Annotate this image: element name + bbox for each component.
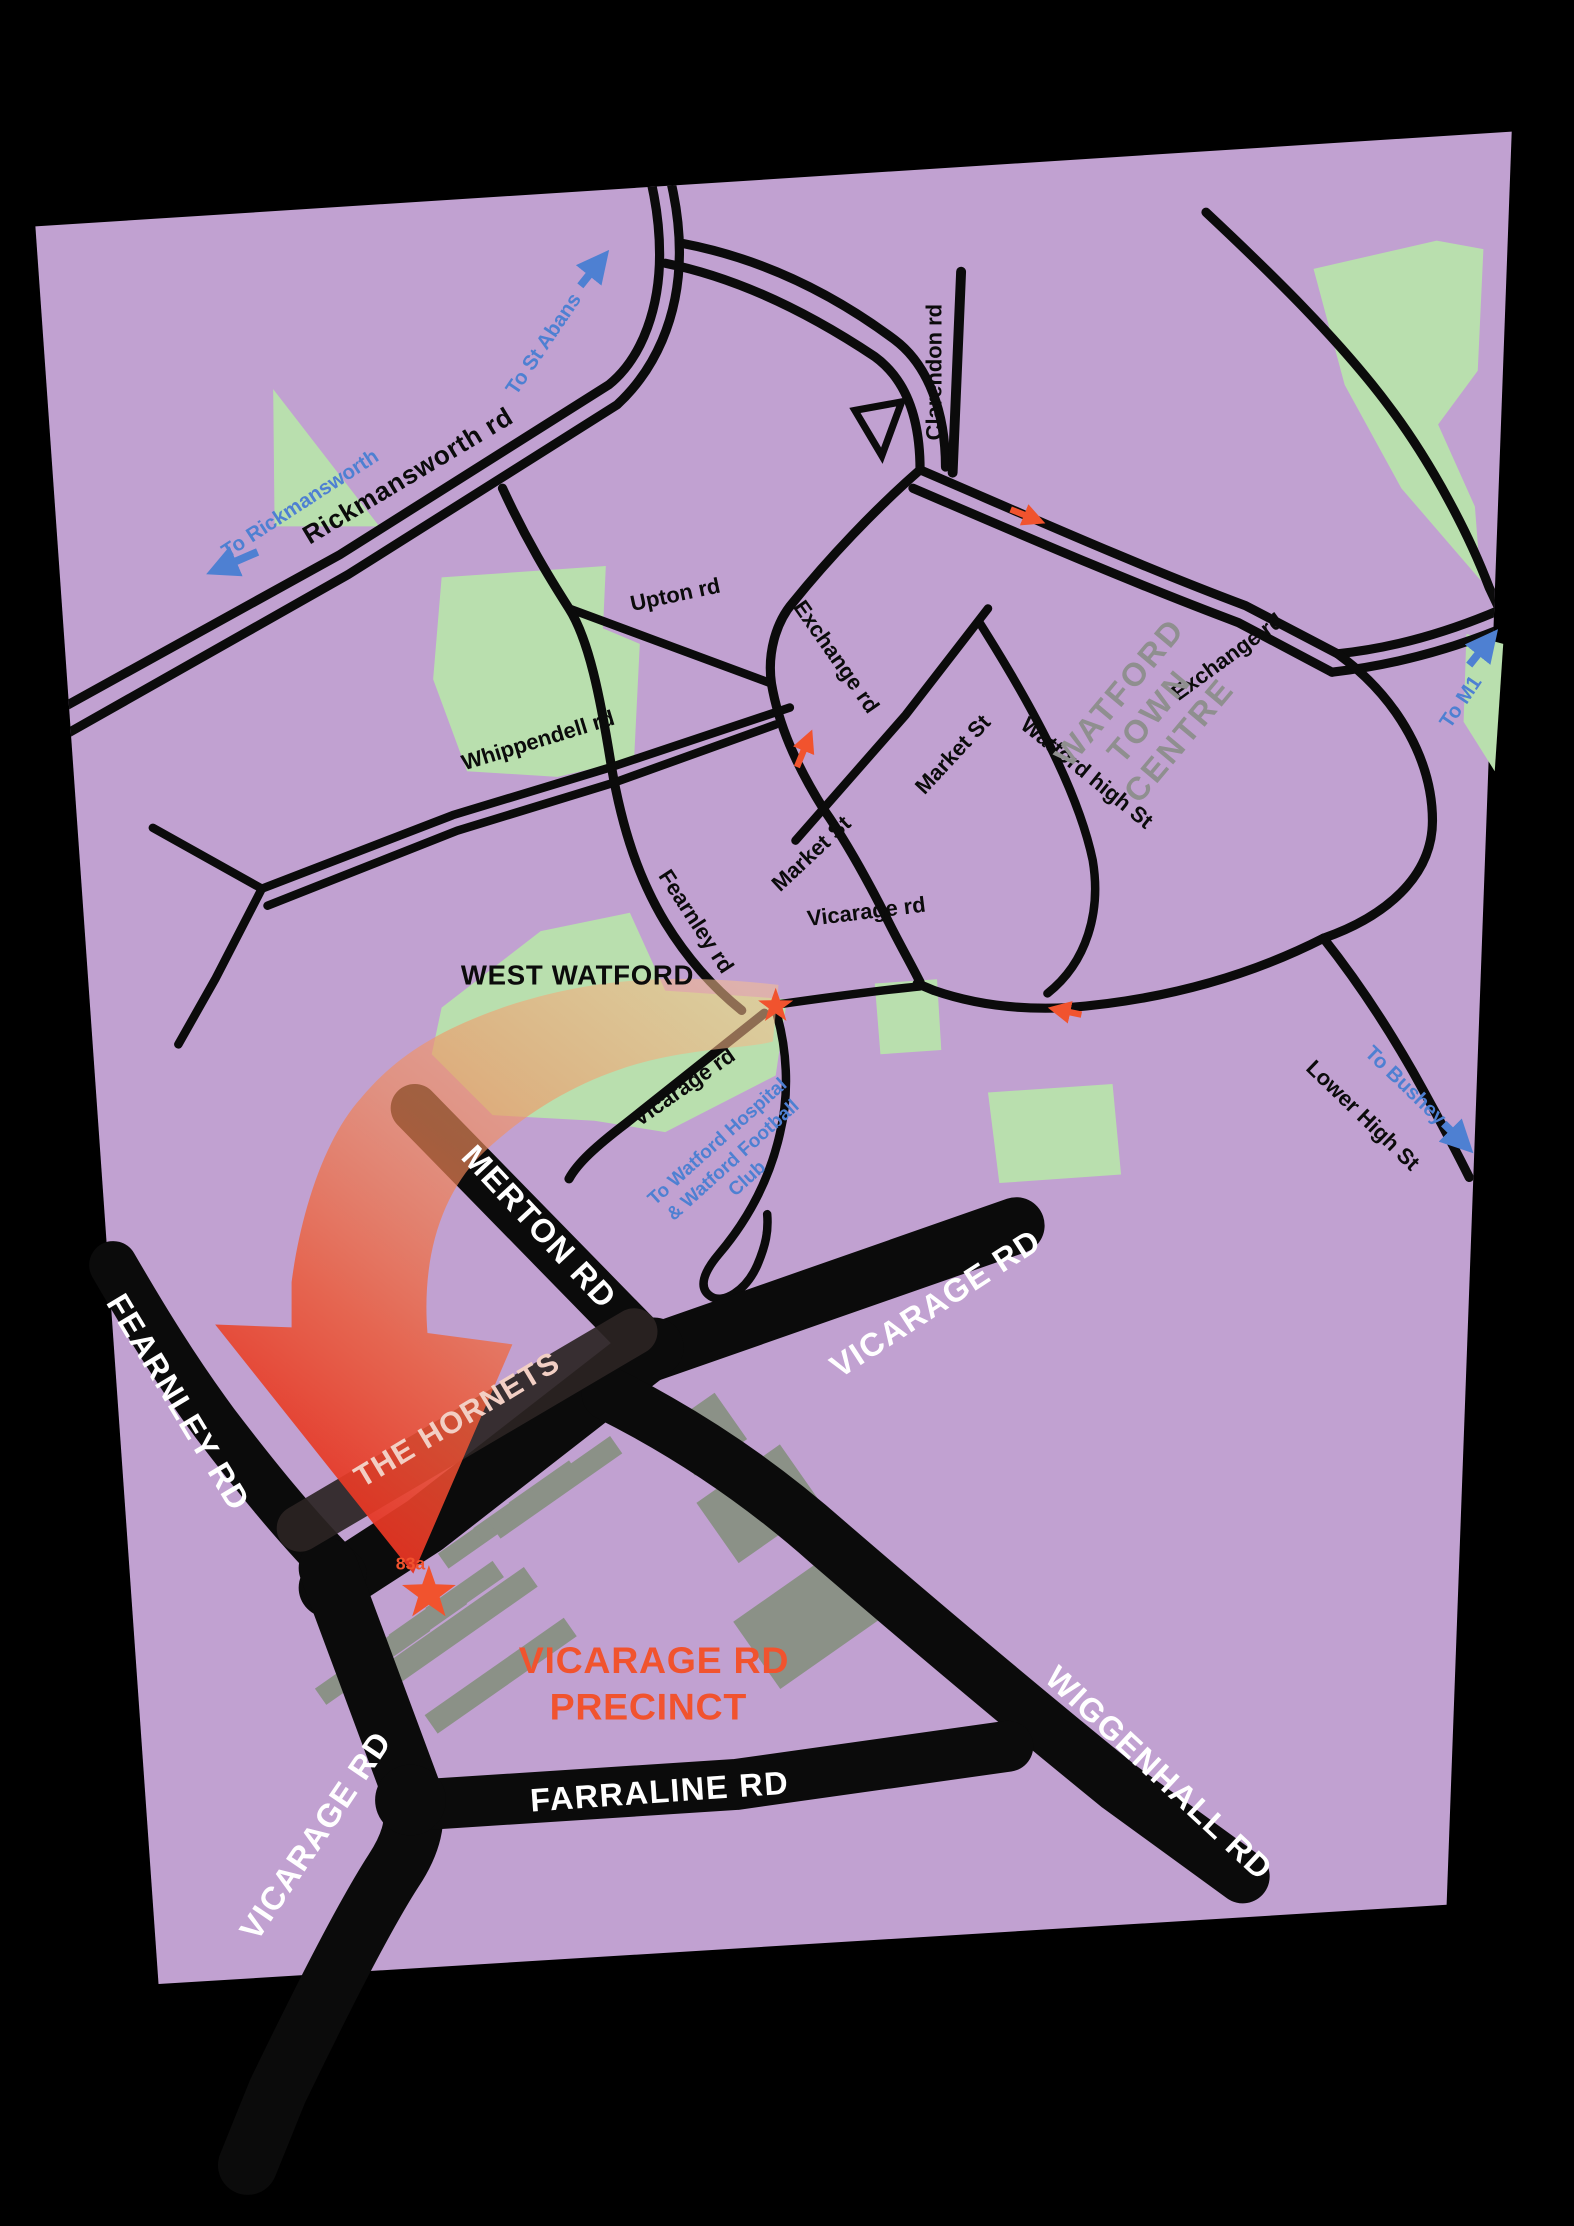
map-page: Rickmansworth rd Clarendon rd Upton rd E… bbox=[0, 0, 1574, 2226]
label-precinct-line1: VICARAGE RD bbox=[519, 1639, 789, 1681]
label-clarendon-rd: Clarendon rd bbox=[922, 304, 947, 440]
park-area bbox=[988, 1084, 1121, 1183]
watford-location-map: Rickmansworth rd Clarendon rd Upton rd E… bbox=[0, 0, 1574, 2226]
label-precinct-address: 83a bbox=[396, 1554, 426, 1574]
inset-junction bbox=[375, 1765, 446, 1836]
label-precinct-line2: PRECINCT bbox=[550, 1686, 747, 1728]
label-west-watford: WEST WATFORD bbox=[461, 960, 694, 991]
